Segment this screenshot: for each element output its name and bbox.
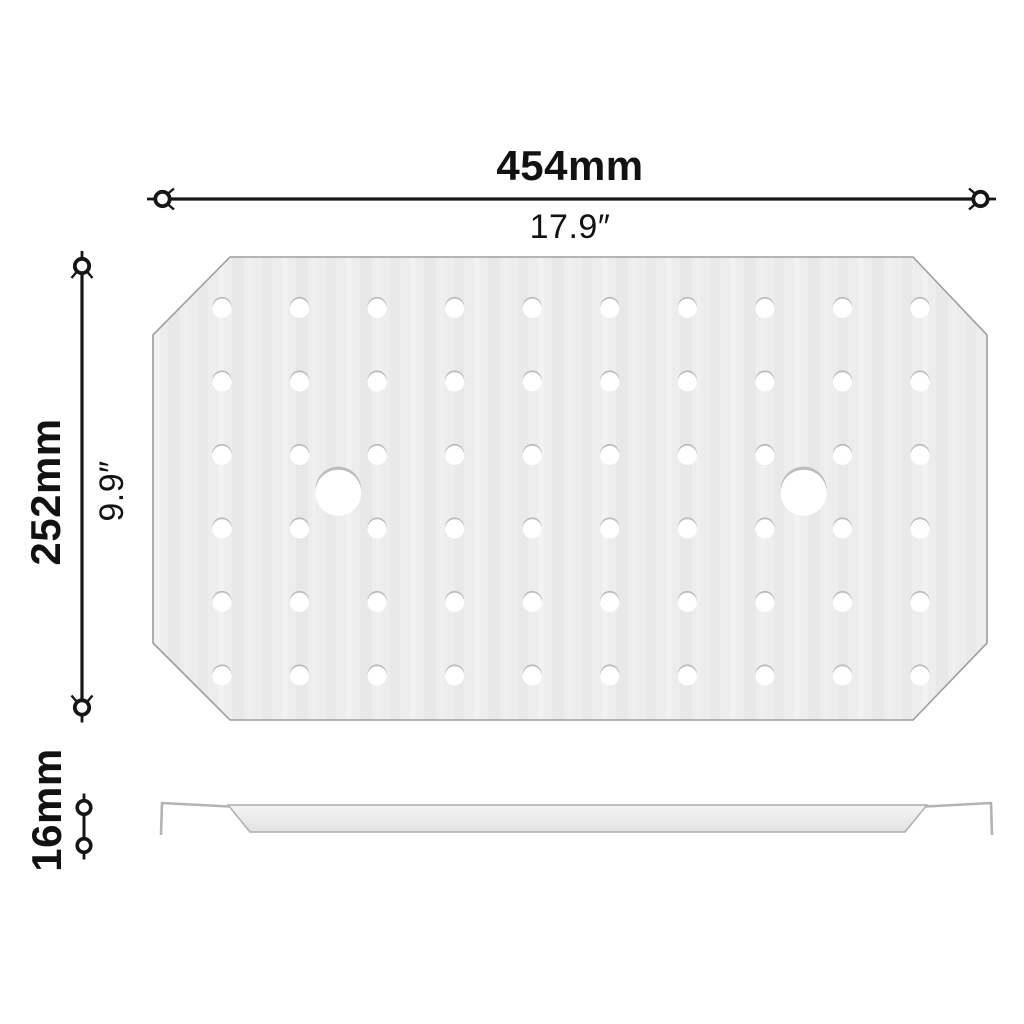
small-hole: [523, 666, 542, 685]
small-hole: [290, 446, 309, 465]
small-hole: [523, 446, 542, 465]
small-hole: [368, 299, 387, 318]
small-hole: [833, 299, 852, 318]
small-hole: [755, 519, 774, 538]
small-hole: [833, 519, 852, 538]
depth-imperial-label: 9.9″: [95, 460, 129, 521]
dim-endpoint: [75, 700, 89, 714]
small-hole: [910, 446, 929, 465]
small-hole: [523, 372, 542, 391]
small-hole: [678, 519, 697, 538]
small-hole: [212, 519, 231, 538]
small-hole: [523, 519, 542, 538]
small-hole: [600, 446, 619, 465]
top-view-plate: [153, 257, 987, 720]
small-hole: [445, 519, 464, 538]
small-hole: [755, 372, 774, 391]
small-hole: [910, 372, 929, 391]
small-hole: [368, 666, 387, 685]
small-hole: [910, 299, 929, 318]
small-hole: [600, 593, 619, 612]
dim-endpoint: [77, 801, 91, 815]
dim-endpoint: [77, 839, 91, 853]
small-hole: [678, 593, 697, 612]
small-hole: [755, 446, 774, 465]
small-hole: [290, 372, 309, 391]
small-hole: [600, 519, 619, 538]
large-hole: [781, 470, 827, 516]
small-hole: [833, 593, 852, 612]
depth-metric-label: 252mm: [25, 418, 67, 565]
small-hole: [212, 446, 231, 465]
small-hole: [910, 593, 929, 612]
width-dimension-line: [147, 189, 996, 210]
small-hole: [678, 372, 697, 391]
small-hole: [445, 666, 464, 685]
small-hole: [600, 372, 619, 391]
small-hole: [910, 666, 929, 685]
large-hole: [315, 470, 361, 516]
small-hole: [212, 593, 231, 612]
small-hole: [212, 372, 231, 391]
thickness-metric-label: 16mm: [26, 748, 68, 871]
small-hole: [833, 446, 852, 465]
small-hole: [600, 666, 619, 685]
small-hole: [290, 519, 309, 538]
dim-endpoint: [75, 259, 89, 273]
small-hole: [445, 446, 464, 465]
small-hole: [600, 299, 619, 318]
small-hole: [678, 299, 697, 318]
small-hole: [445, 372, 464, 391]
small-hole: [755, 666, 774, 685]
side-profile-view: [161, 803, 992, 835]
small-hole: [755, 299, 774, 318]
small-hole: [523, 593, 542, 612]
small-hole: [290, 666, 309, 685]
diagram-canvas: 454mm 17.9″ 252mm 9.9″ 16mm: [0, 0, 1024, 1024]
plate-outline: [153, 257, 987, 720]
small-hole: [368, 593, 387, 612]
depth-dimension-line: [72, 251, 93, 723]
profile-left-hook: [161, 803, 229, 835]
small-hole: [290, 299, 309, 318]
small-hole: [755, 593, 774, 612]
small-hole: [290, 593, 309, 612]
small-hole: [523, 299, 542, 318]
small-hole: [678, 666, 697, 685]
small-hole: [212, 666, 231, 685]
small-hole: [368, 446, 387, 465]
width-imperial-label: 17.9″: [530, 210, 611, 244]
small-hole: [910, 519, 929, 538]
small-hole: [678, 446, 697, 465]
width-metric-label: 454mm: [496, 145, 643, 187]
small-hole: [445, 593, 464, 612]
small-hole: [368, 519, 387, 538]
small-hole: [833, 666, 852, 685]
small-hole: [212, 299, 231, 318]
profile-right-hook: [926, 803, 992, 835]
small-hole: [445, 299, 464, 318]
thickness-dimension-line: [77, 794, 91, 860]
profile-body: [228, 805, 927, 832]
small-hole: [368, 372, 387, 391]
small-hole: [833, 372, 852, 391]
